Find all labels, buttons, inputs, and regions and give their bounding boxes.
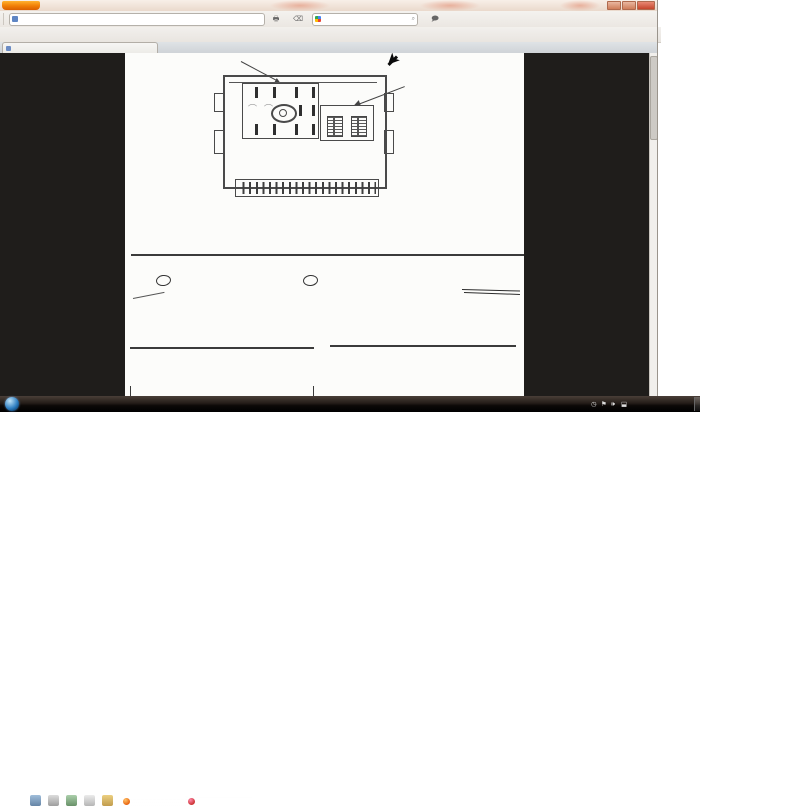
tab-favicon-icon: [6, 46, 11, 51]
pinned-folder-icon[interactable]: [102, 795, 113, 806]
taskbar-button-active[interactable]: [120, 794, 188, 809]
bookmarks-toolbar: [0, 27, 661, 43]
taskbar: ◷ ⚑ 🕪 ⬓: [0, 396, 700, 412]
google-icon: [315, 16, 321, 22]
minimize-button[interactable]: [607, 1, 621, 10]
connector-right-tab: [384, 93, 394, 112]
scanned-pinout-image[interactable]: ➤ ⌒ ⌒: [125, 53, 524, 396]
search-icon[interactable]: ⌕: [412, 15, 415, 23]
connector-top-lip: [229, 75, 377, 83]
firefox-icon: [123, 798, 130, 805]
connector-comb-edge: [235, 179, 379, 197]
pinned-app-icon[interactable]: [84, 795, 95, 806]
taskbar-button[interactable]: [185, 794, 253, 809]
table-cut-row: [130, 386, 314, 396]
connector-right-tab: [384, 130, 394, 154]
connector-b-table: [130, 347, 314, 349]
search-input[interactable]: ⌕: [312, 13, 418, 26]
show-desktop-button[interactable]: [694, 397, 700, 411]
firefox-app-button[interactable]: [2, 1, 40, 10]
pin-socket: [327, 116, 343, 137]
glass-smudge: [270, 0, 330, 11]
pen-stroke-annotation: [133, 292, 165, 299]
clear-button[interactable]: ⌫: [287, 12, 309, 27]
separator: [3, 13, 4, 25]
pinned-app-icon[interactable]: [48, 795, 59, 806]
glass-smudge: [420, 0, 480, 11]
close-button[interactable]: [637, 1, 655, 10]
window-controls: [607, 1, 655, 10]
pen-underline-annotation: [462, 289, 520, 292]
part-a-pin-field: ⌒ ⌒: [242, 83, 319, 139]
tray-clock-icon[interactable]: ◷: [591, 400, 597, 408]
pen-circle-annotation: [302, 274, 318, 287]
page-favicon-icon: [12, 16, 18, 22]
navigation-toolbar: 🖶 ⌫ ⌕ 🗩: [0, 11, 658, 28]
app-icon: [188, 798, 195, 805]
connector-a-table: [131, 254, 524, 256]
pinned-app-icon[interactable]: [66, 795, 77, 806]
translator-icon: 🗩: [431, 15, 439, 23]
volume-icon[interactable]: 🕪: [611, 400, 615, 409]
imtranslator-button[interactable]: 🗩: [418, 12, 452, 27]
maximize-button[interactable]: [622, 1, 636, 10]
pinned-app-icon[interactable]: [30, 795, 41, 806]
action-center-flag-icon[interactable]: ⚑: [601, 400, 607, 408]
printer-icon: 🖶: [273, 15, 280, 23]
clear-icon: ⌫: [293, 15, 303, 23]
connector-left-tab: [214, 93, 224, 112]
print-button[interactable]: 🖶: [265, 12, 287, 27]
start-button[interactable]: [5, 397, 19, 411]
connector-c-table: [330, 345, 516, 347]
network-icon[interactable]: ⬓: [621, 400, 627, 408]
screen: 🖶 ⌫ ⌕ 🗩 ➤: [0, 0, 800, 600]
connector-left-tab: [214, 130, 224, 154]
pen-circle-annotation: [155, 274, 171, 287]
window-border: [657, 0, 658, 396]
new-tab-button[interactable]: [155, 44, 164, 52]
pen-underline-annotation: [464, 292, 520, 295]
url-bar[interactable]: [9, 13, 265, 26]
part-f-pin-field: [320, 105, 374, 141]
pin-socket: [351, 116, 367, 137]
glass-smudge: [560, 0, 600, 11]
